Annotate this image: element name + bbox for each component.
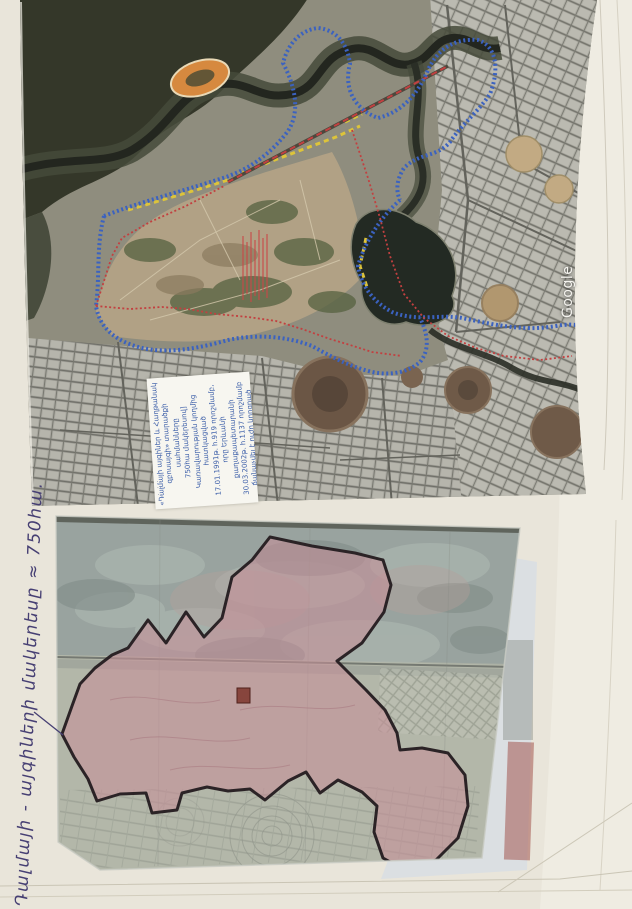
map-red-square-marker bbox=[237, 688, 250, 703]
page-photo bbox=[0, 0, 632, 909]
label-box: «Դալմայի այգիներ և Հաղթանակ զբոսայգի» տա… bbox=[147, 372, 259, 510]
cadastral-map-photo bbox=[50, 510, 530, 880]
map-city-blocks bbox=[378, 668, 510, 740]
label-text: «Դալմայի այգիներ և Հաղթանակ զբոսայգի» տա… bbox=[149, 374, 256, 507]
google-watermark: Google bbox=[560, 266, 576, 318]
satellite-photo bbox=[0, 0, 610, 515]
